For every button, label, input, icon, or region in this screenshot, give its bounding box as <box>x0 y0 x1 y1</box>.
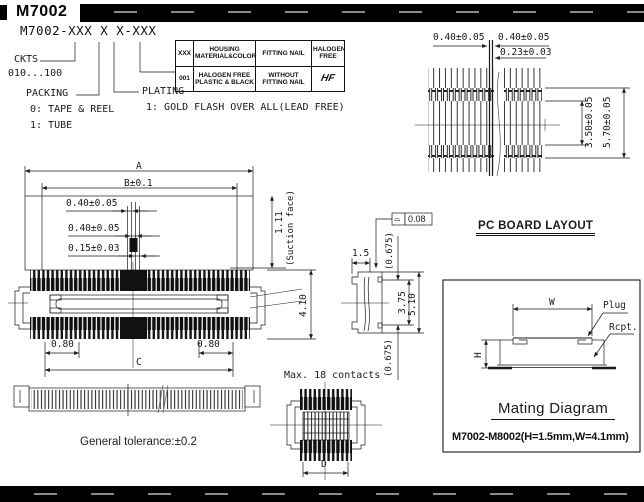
pcb-dim-pitch-right: 0.40±0.05 <box>498 33 549 43</box>
pcb-pad-layout-view <box>415 40 630 180</box>
packing-option-tube: 1: TUBE <box>30 121 72 131</box>
plug-label: Plug <box>603 301 626 311</box>
max-contacts-note: Max. 18 contacts <box>284 371 380 381</box>
dim-d: D <box>321 460 327 470</box>
dim-side-width: 1.5 <box>352 249 369 259</box>
packing-label: PACKING <box>26 89 68 99</box>
ckts-label: CKTS <box>14 55 38 65</box>
datasheet-page: M7002 <box>0 0 644 502</box>
pcb-layout-title: PC BOARD LAYOUT <box>476 220 595 236</box>
cell-code: 001 <box>176 66 194 92</box>
dim-end-right: 0.80 <box>197 340 220 350</box>
ckts-range: 010...100 <box>8 69 62 79</box>
dim-depth: 4.10 <box>299 294 309 317</box>
dim-end-left: 0.80 <box>51 340 74 350</box>
col-header-fitting: FITTING NAIL <box>256 41 312 67</box>
suction-face-label: (Suction face) <box>287 190 296 266</box>
col-header-housing: HOUSING MATERIAL&COLOR <box>194 41 256 67</box>
dim-pitch-1: 0.40±0.05 <box>66 199 117 209</box>
dim-pitch-2: 0.40±0.05 <box>68 224 119 234</box>
options-table: XXX HOUSING MATERIAL&COLOR FITTING NAIL … <box>175 40 345 92</box>
packing-option-tape: 0: TAPE & REEL <box>30 105 114 115</box>
dim-key: 0.15±0.03 <box>68 244 119 254</box>
halogen-free-logo-icon: HF <box>320 73 336 84</box>
dim-bottom-ref: (0.675) <box>385 339 394 377</box>
mating-dim-h: H <box>474 352 484 358</box>
dim-total-height: 5.10 <box>408 293 418 316</box>
strip-side-view <box>14 384 260 416</box>
pcb-dim-inner-span: 3.50±0.05 <box>585 97 595 148</box>
options-table-row: 001 HALOGEN FREE PLASTIC & BLACK WITHOUT… <box>176 66 345 92</box>
cell-housing: HALOGEN FREE PLASTIC & BLACK <box>194 66 256 92</box>
mating-diagram-title: Mating Diagram <box>491 400 615 420</box>
pcb-dim-pitch-left: 0.40±0.05 <box>433 33 484 43</box>
pcb-dim-outer-span: 5.70±0.05 <box>603 97 613 148</box>
mating-dim-w: W <box>549 298 555 308</box>
dim-suction-height: 1.11 <box>275 211 285 234</box>
mating-diagram-note: M7002-M8002(H=1.5mm,W=4.1mm) <box>452 431 629 443</box>
flatness-symbol-icon: ⌓ <box>394 215 400 223</box>
dim-top-ref: (0.675) <box>386 232 395 270</box>
col-header-halogen: HALOGEN FREE <box>312 41 345 67</box>
rcpt-label: Rcpt. <box>609 323 638 333</box>
dim-a: A <box>136 162 142 172</box>
col-header-xxx: XXX <box>176 41 194 67</box>
plating-option: 1: GOLD FLASH OVER ALL(LEAD FREE) <box>146 103 345 113</box>
dim-b: B±0.1 <box>124 179 153 189</box>
part-number-pattern: M7002-XXX X X-XXX <box>20 25 156 38</box>
dim-c: C <box>136 358 142 368</box>
options-table-header-row: XXX HOUSING MATERIAL&COLOR FITTING NAIL … <box>176 41 345 67</box>
cell-fitting: WITHOUT FITTING NAIL <box>256 66 312 92</box>
pcb-dim-key-pad: 0.23±0.03 <box>500 48 551 58</box>
flatness-value: 0.08 <box>408 215 426 224</box>
general-tolerance-note: General tolerance:±0.2 <box>80 436 197 448</box>
